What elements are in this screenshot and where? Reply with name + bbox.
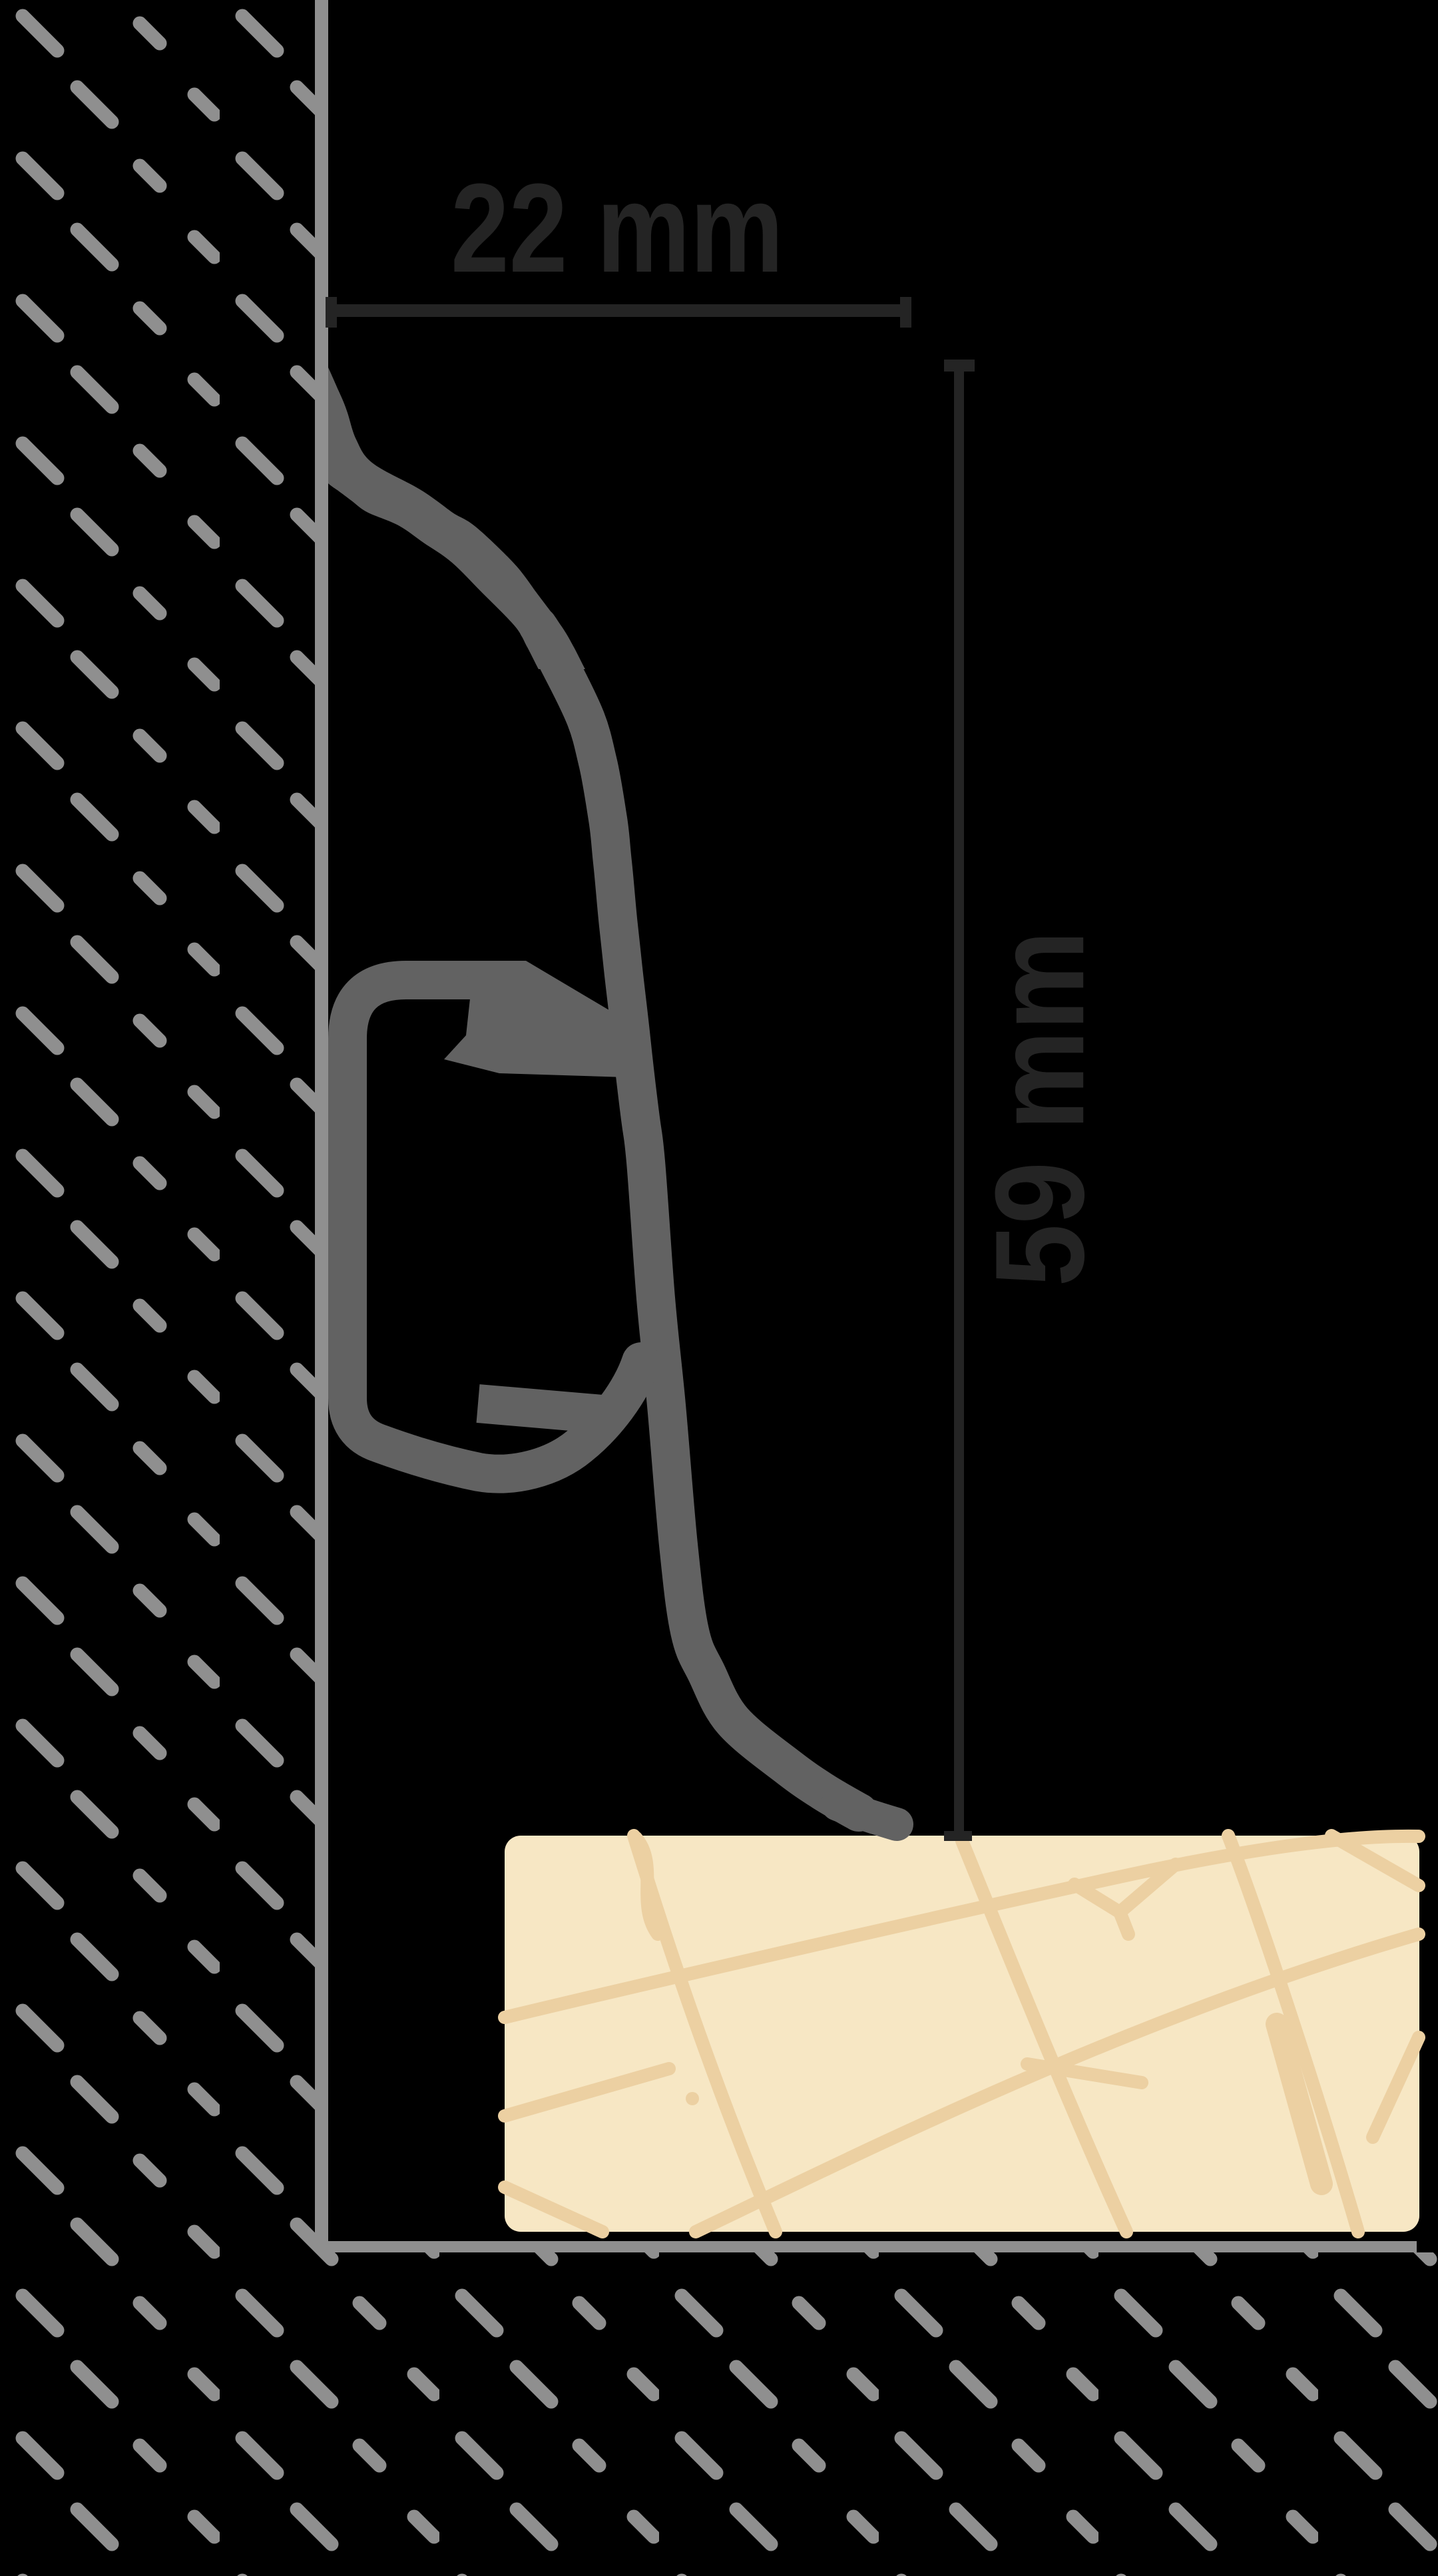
svg-text:22 mm: 22 mm	[451, 158, 784, 299]
svg-text:59 mm: 59 mm	[969, 931, 1110, 1287]
